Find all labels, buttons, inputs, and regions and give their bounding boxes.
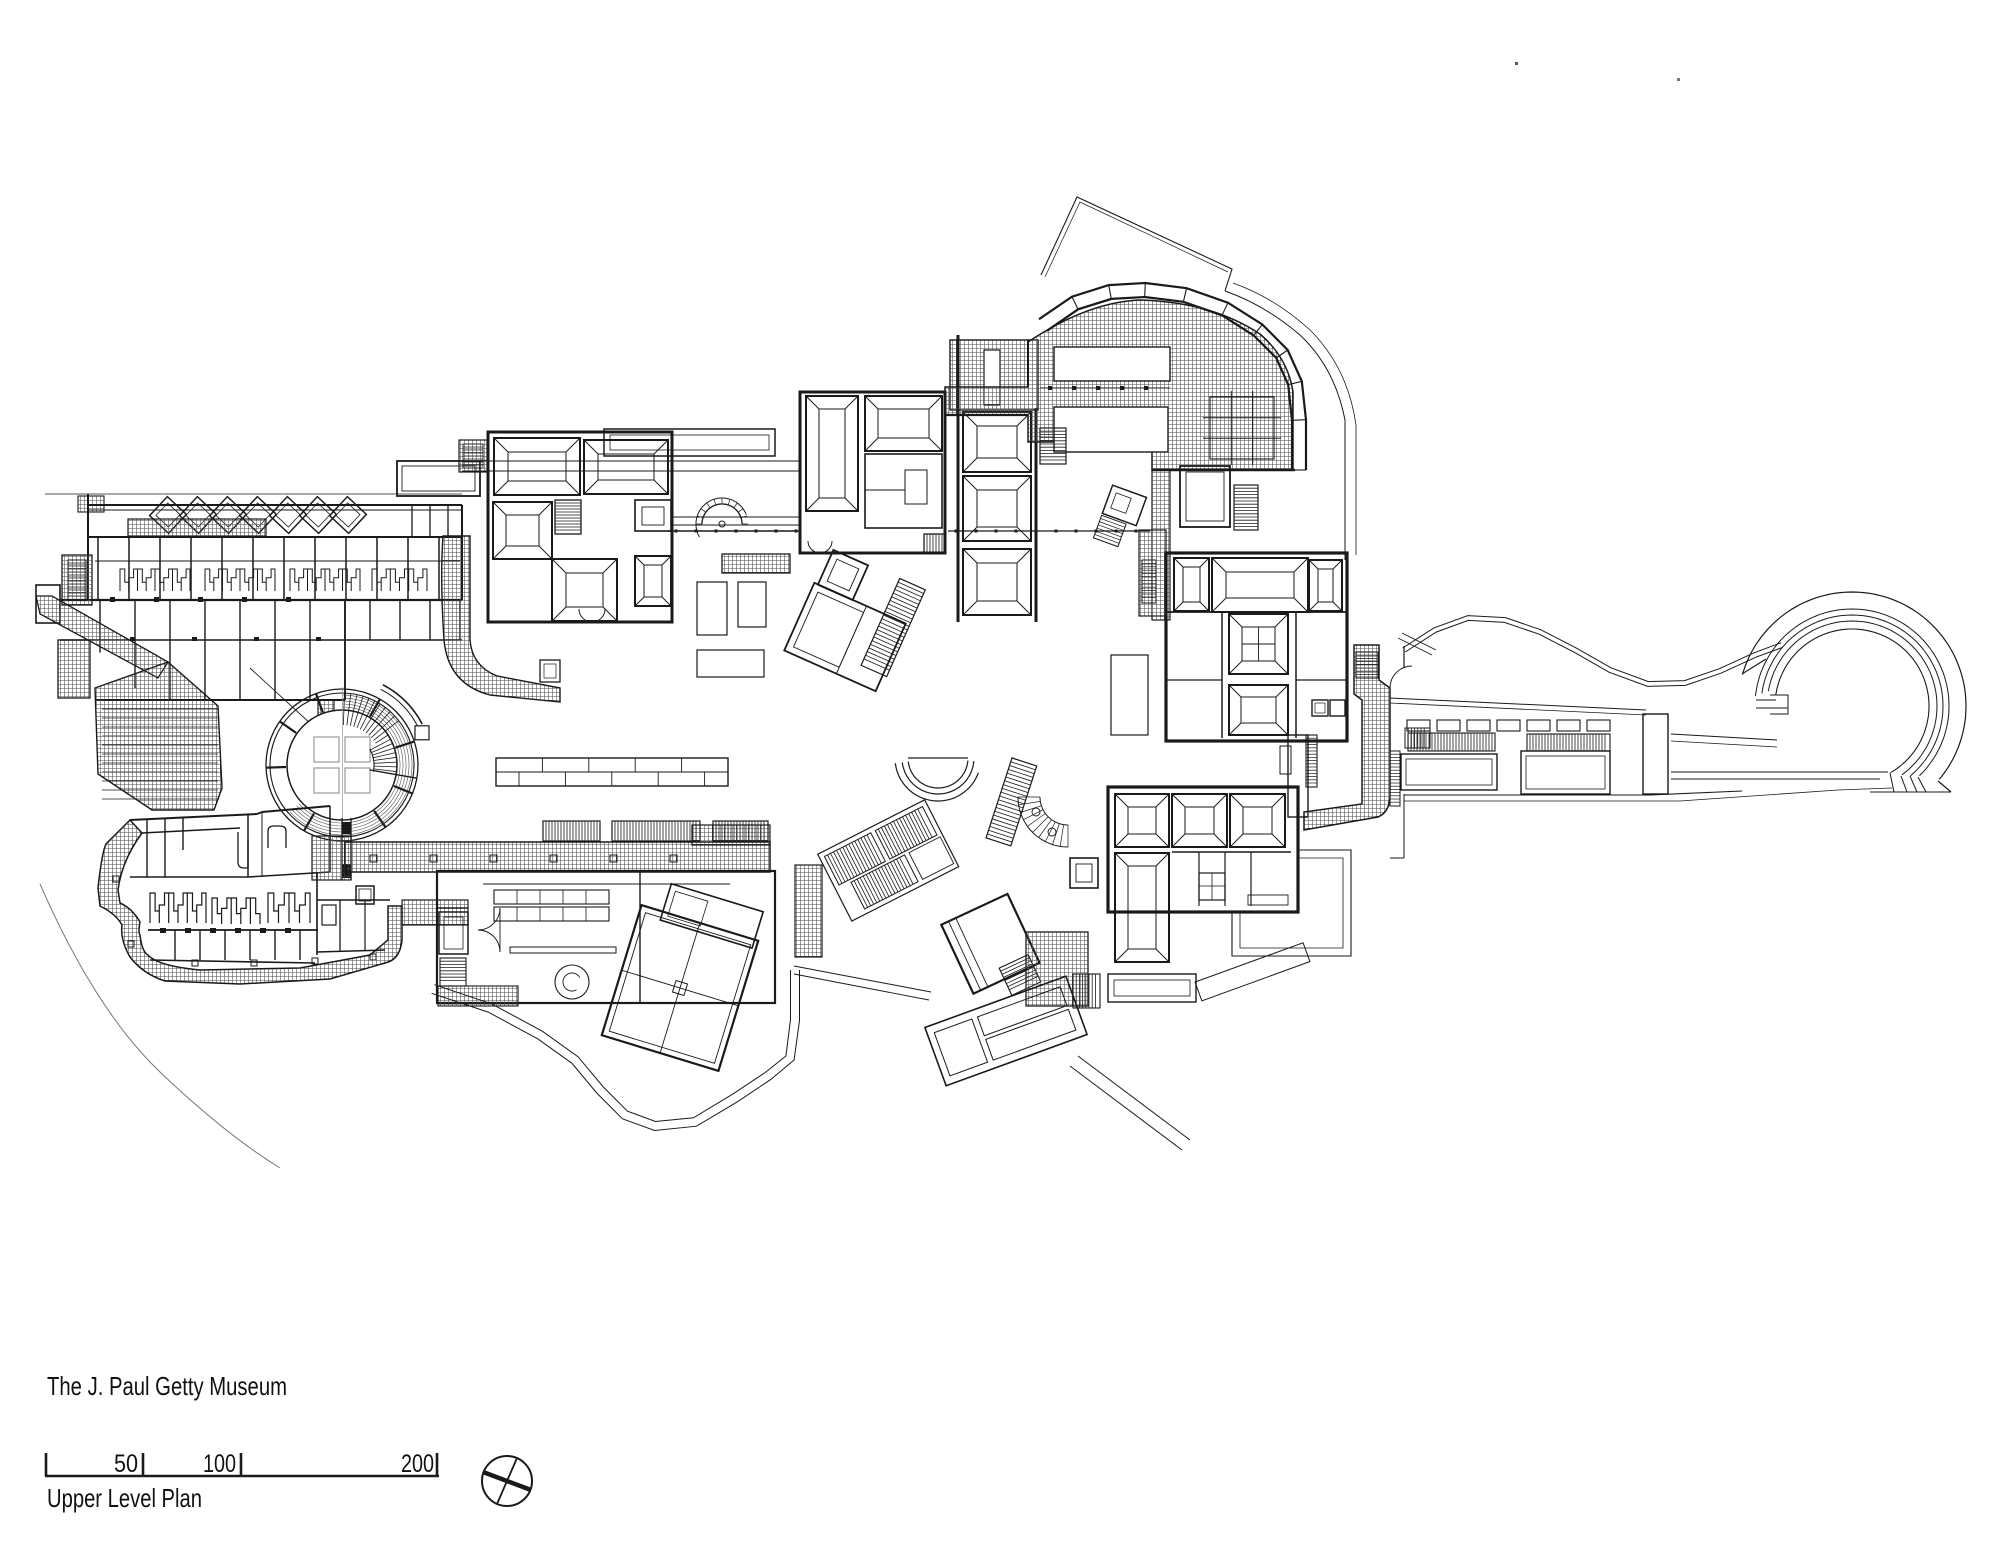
svg-text:100: 100 (203, 1450, 236, 1478)
svg-text:200: 200 (401, 1450, 434, 1478)
svg-text:The J. Paul Getty Museum: The J. Paul Getty Museum (47, 1371, 287, 1401)
svg-text:Upper Level Plan: Upper Level Plan (47, 1483, 202, 1513)
svg-text:50: 50 (114, 1450, 138, 1478)
